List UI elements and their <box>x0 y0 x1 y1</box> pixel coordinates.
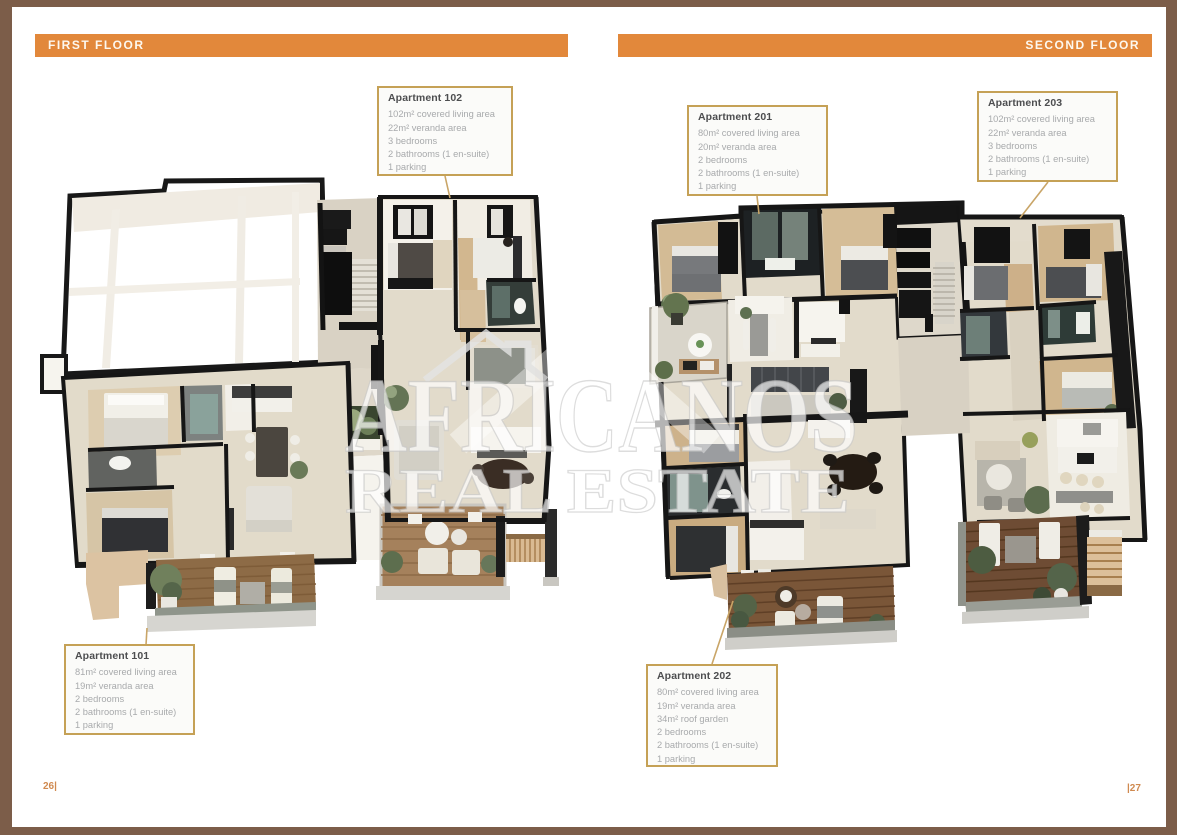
svg-text:REAL ESTATE: REAL ESTATE <box>345 455 850 526</box>
